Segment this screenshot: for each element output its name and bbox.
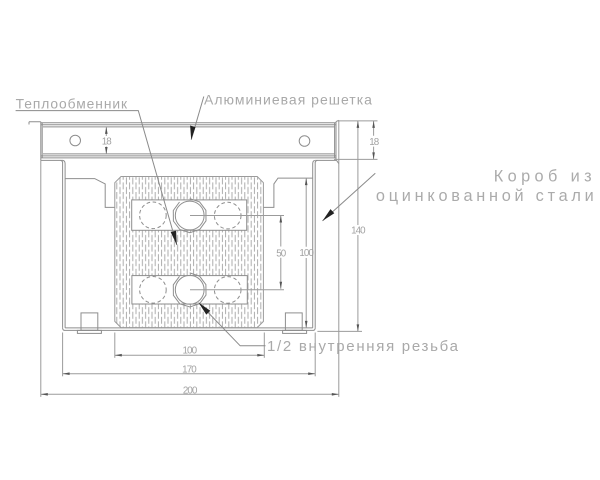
svg-text:140: 140 (351, 225, 366, 236)
svg-text:50: 50 (276, 248, 287, 259)
svg-text:100: 100 (182, 345, 197, 356)
svg-text:100: 100 (299, 248, 314, 259)
svg-text:18: 18 (369, 137, 380, 148)
svg-text:Алюминиевая решетка: Алюминиевая решетка (204, 92, 373, 108)
svg-text:Короб из: Короб из (494, 168, 596, 186)
svg-text:оцинкованной стали: оцинкованной стали (376, 187, 598, 205)
svg-text:Теплообменник: Теплообменник (16, 97, 128, 112)
svg-text:18: 18 (102, 137, 113, 148)
svg-text:200: 200 (183, 385, 198, 396)
svg-text:1/2 внутренняя резьба: 1/2 внутренняя резьба (267, 338, 460, 355)
svg-text:170: 170 (182, 365, 197, 376)
